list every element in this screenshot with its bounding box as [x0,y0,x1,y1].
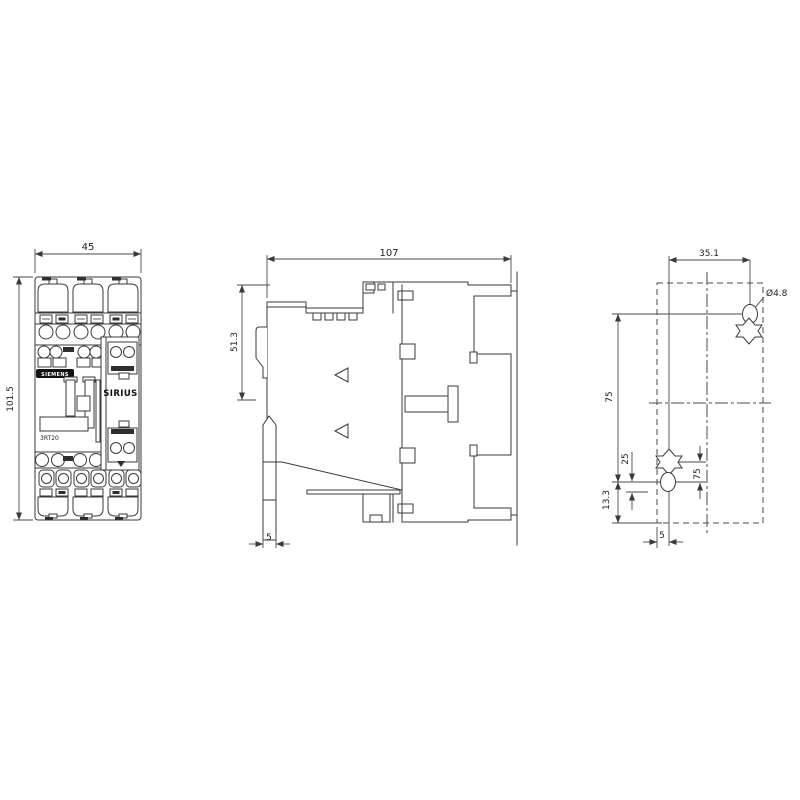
side-clip-depth-dim-label: 5 [266,533,272,543]
bottom-window [398,504,413,513]
hole-diameter-callout: Ø4.8 [753,288,788,310]
bottom-offset-dimension: 13.3 [602,482,618,523]
top-terminal-clamps [38,278,138,313]
hole-spacing-h-dimension: 35.1 [669,249,750,260]
front-view: 45 101.5 [6,242,141,520]
front-height-dim-label: 101.5 [6,386,16,412]
slot-offset-dimension: 75 [693,446,703,499]
hole-spacing-v-label: 75 [605,391,615,402]
hole-spacing-v-dimension: 75 [605,314,618,482]
hole-spacing-h-label: 35.1 [699,249,719,259]
side-upper-height-dim-label: 51.3 [230,332,240,352]
front-height-dimension: 101.5 [6,277,33,520]
bottom-offset-label: 13.3 [602,490,612,510]
keyhole-bottom [656,449,682,492]
dimension-drawing: 45 101.5 [0,0,800,800]
model-label: 3RT20 [40,435,59,442]
side-clip-depth-dimension: 5 [249,532,290,548]
slot-offset-label: 75 [693,468,703,479]
side-view: 107 51.3 [230,248,517,548]
base-band [307,490,400,494]
top-window [398,291,413,300]
front-width-dim-label: 45 [82,242,95,253]
side-width-dim-label: 107 [379,248,398,259]
hole-diameter-label: Ø4.8 [766,288,788,299]
slot-offset-small-label: 25 [621,453,631,464]
contactor-side-outline [267,282,511,522]
edge-offset-label: 5 [659,531,665,541]
series-label: SIRIUS [103,389,137,399]
keyhole-top [736,305,762,345]
slot-offset-small-dimension: 25 [621,452,632,510]
mounting-plane-line [511,272,517,545]
edge-offset-dimension: 5 [643,531,683,542]
drilling-pattern-view: 35.1 Ø4.8 75 13.3 25 [602,249,788,548]
front-width-dimension: 45 [35,242,141,273]
auxiliary-contact-block: SIRIUS [101,337,139,470]
dimension-drawing-page: 45 101.5 [0,0,800,800]
bottom-terminal-clamps [38,497,138,520]
